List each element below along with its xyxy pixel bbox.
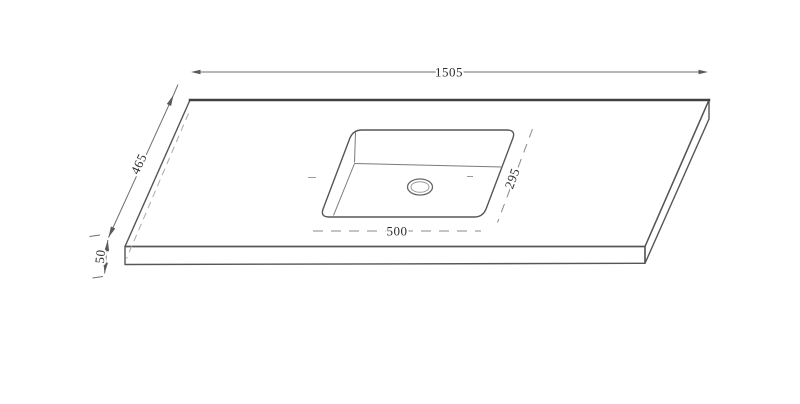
dim-label-sink-depth: 295: [501, 166, 522, 191]
arrowhead-depth-bottom: [109, 227, 116, 238]
countertop-front-face: [125, 247, 645, 265]
countertop-hidden-left-bottom-edge: [127, 114, 189, 259]
dim-extension-thickness-bottom: [93, 277, 104, 279]
dimension-overall-width: 1505: [191, 65, 708, 80]
countertop-right-face: [645, 100, 709, 263]
sink-rim-outline: [322, 130, 513, 217]
sink-basin: [308, 130, 514, 217]
dimension-overall-depth: 465: [109, 85, 179, 238]
arrowhead-thickness-top: [104, 240, 109, 251]
dimension-sink-depth: 295: [498, 129, 533, 223]
drain-inner-ring: [411, 182, 429, 193]
arrowhead-left: [191, 70, 201, 74]
drawing-canvas: 1505 465 50 500 295: [0, 0, 800, 404]
dim-label-overall-width: 1505: [435, 65, 463, 80]
sink-left-back-corner-seam: [355, 133, 356, 163]
dim-extension-depth-top: [174, 85, 179, 96]
dimension-thickness: 50: [90, 235, 110, 278]
arrowhead-depth-top: [167, 95, 174, 106]
countertop-top-face: [125, 100, 709, 247]
dim-label-sink-width: 500: [387, 224, 408, 239]
dim-label-thickness: 50: [92, 249, 108, 264]
dimension-sink-width: 500: [313, 224, 481, 239]
dim-extension-thickness-top: [90, 235, 101, 237]
arrowhead-right: [699, 70, 709, 74]
sink-back-wall-base-line: [355, 164, 503, 168]
technical-drawing-countertop: 1505 465 50 500 295: [0, 0, 800, 404]
